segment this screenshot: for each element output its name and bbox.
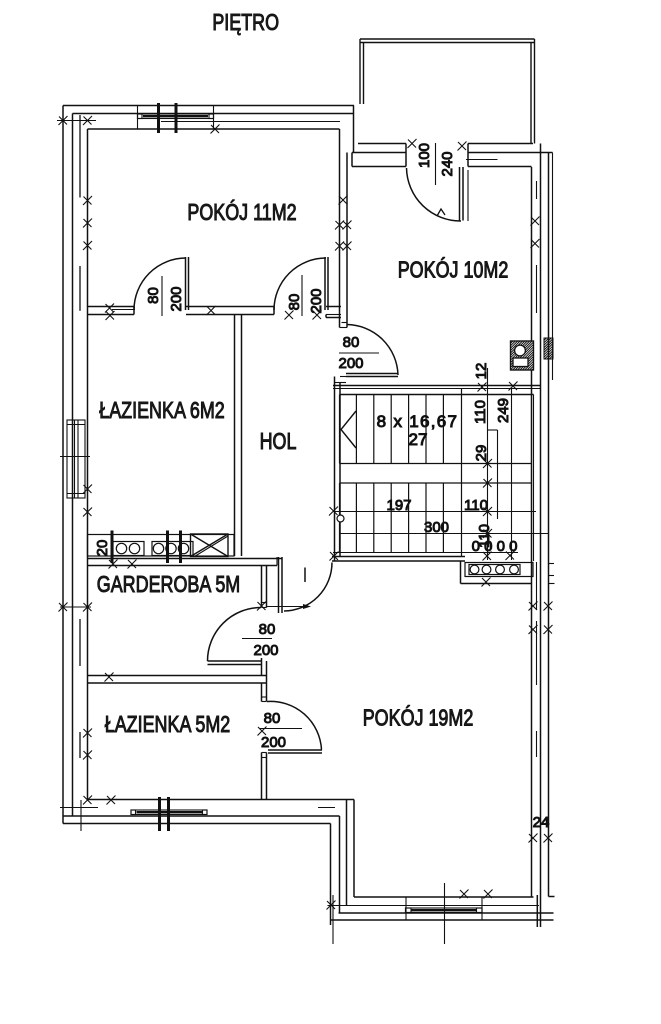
svg-text:110: 110 xyxy=(476,524,493,548)
svg-text:20: 20 xyxy=(94,540,111,557)
svg-text:80: 80 xyxy=(286,294,303,311)
svg-text:200: 200 xyxy=(261,734,286,751)
svg-text:29: 29 xyxy=(473,445,490,462)
svg-text:197: 197 xyxy=(386,497,411,514)
svg-text:POKÓJ 19M2: POKÓJ 19M2 xyxy=(363,705,474,731)
svg-text:POKÓJ 10M2: POKÓJ 10M2 xyxy=(398,257,509,283)
svg-text:300: 300 xyxy=(424,519,449,536)
svg-text:27: 27 xyxy=(409,430,428,449)
svg-text:24: 24 xyxy=(533,814,550,831)
svg-text:110: 110 xyxy=(464,497,488,514)
svg-text:249: 249 xyxy=(495,398,512,423)
svg-text:GARDEROBA 5M: GARDEROBA 5M xyxy=(97,572,240,598)
svg-text:8 x 16,67: 8 x 16,67 xyxy=(377,412,459,431)
svg-text:12: 12 xyxy=(473,363,490,380)
svg-text:PIĘTRO: PIĘTRO xyxy=(212,10,279,36)
svg-text:POKÓJ 11M2: POKÓJ 11M2 xyxy=(187,200,296,226)
svg-text:80: 80 xyxy=(264,710,281,727)
svg-text:100: 100 xyxy=(416,143,433,168)
svg-text:110: 110 xyxy=(472,400,489,424)
svg-text:80: 80 xyxy=(259,621,276,638)
svg-text:200: 200 xyxy=(168,286,185,311)
svg-text:200: 200 xyxy=(338,355,363,372)
svg-text:ŁAZIENKA 5M2: ŁAZIENKA 5M2 xyxy=(105,712,231,738)
svg-text:80: 80 xyxy=(145,287,162,304)
svg-text:80: 80 xyxy=(343,334,360,351)
svg-text:240: 240 xyxy=(439,151,456,176)
svg-text:HOL: HOL xyxy=(260,429,297,455)
svg-text:200: 200 xyxy=(308,288,325,313)
svg-text:200: 200 xyxy=(253,642,278,659)
svg-text:ŁAZIENKA 6M2: ŁAZIENKA 6M2 xyxy=(99,398,225,424)
